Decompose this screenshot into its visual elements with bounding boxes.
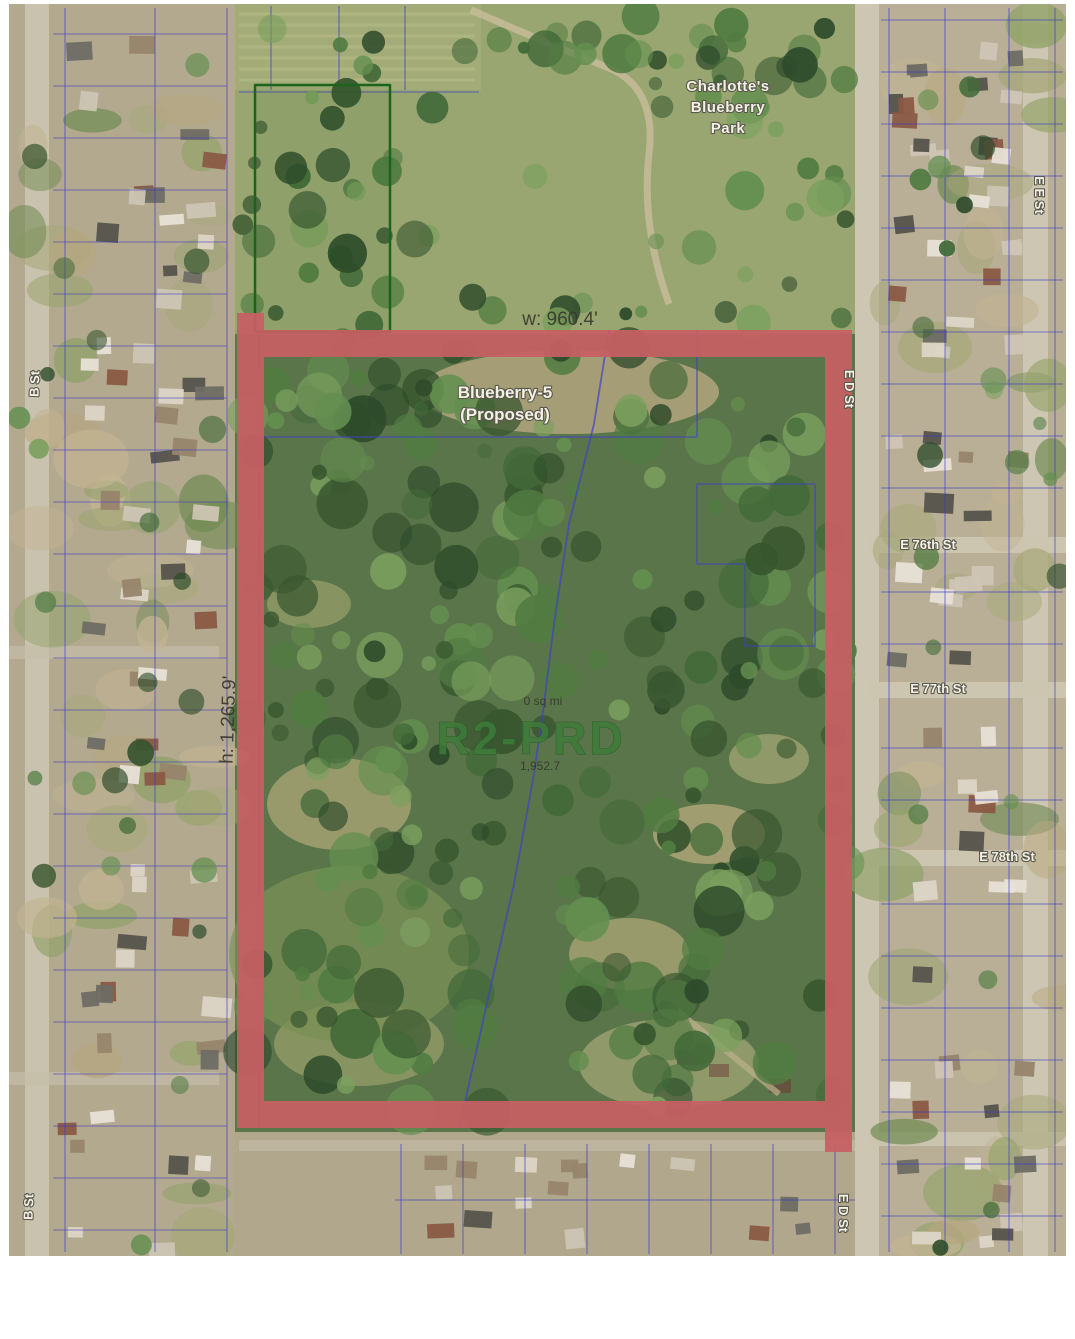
- road-e-77th: [869, 682, 1066, 698]
- width-measurement-label: w: 960.4': [521, 309, 597, 330]
- site-area-label: 0 sq mi: [524, 694, 563, 708]
- zoning-label: R2-PRD: [436, 712, 625, 764]
- street-label-e-e-st: E E St: [1032, 176, 1047, 214]
- green-parcel-outline: [255, 85, 390, 332]
- park-name-line1: Charlotte's: [686, 78, 769, 95]
- street-label-e-d-st-lower: E D St: [836, 1194, 851, 1233]
- street-label-e78th: E 78th St: [979, 849, 1035, 864]
- park-name-line2: Blueberry: [691, 99, 766, 116]
- street-label-b-st-lower: B St: [21, 1193, 37, 1220]
- road-left-mid: [9, 646, 219, 659]
- height-measurement-label: h: 1,265.9': [216, 675, 240, 764]
- street-label-e76th: E 76th St: [900, 537, 956, 552]
- map-canvas: Charlotte's Blueberry Park w: 960.4' h: …: [9, 4, 1066, 1256]
- street-label-b-st-upper: B St: [27, 370, 43, 397]
- road-e-d-st: [855, 4, 879, 1256]
- aerial-parcel-map: Charlotte's Blueberry Park w: 960.4' h: …: [9, 4, 1066, 1256]
- proposed-site-label-line1: Blueberry-5: [458, 383, 552, 402]
- boundary-overshoot-top: [237, 313, 264, 337]
- site-area-value: 1,952.7: [520, 759, 560, 773]
- boundary-overshoot-bottom: [825, 1128, 852, 1152]
- street-label-e77th: E 77th St: [910, 681, 966, 696]
- road-bottom: [239, 1140, 855, 1151]
- street-label-e-d-st-upper: E D St: [842, 370, 857, 409]
- proposed-site-label-line2: (Proposed): [460, 405, 550, 424]
- park-name-line3: Park: [711, 120, 746, 137]
